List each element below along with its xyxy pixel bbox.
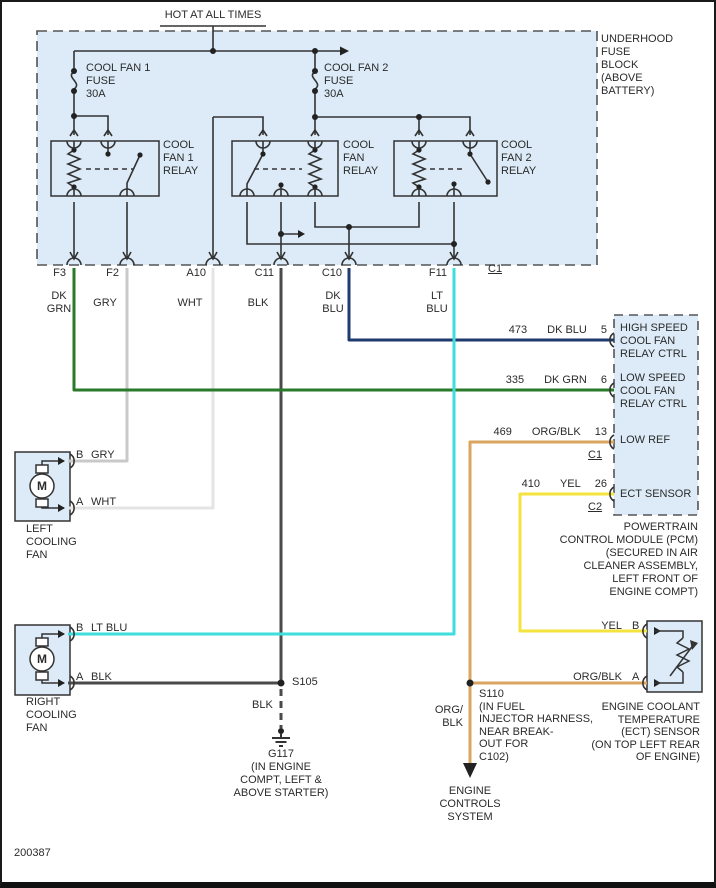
s105-label: S105 [292,676,318,689]
g117-caption: G117 (IN ENGINE COMPT, LEFT & ABOVE STAR… [234,748,329,800]
right-fan-caption: RIGHT COOLING FAN [26,696,77,735]
pcm-conn-c2-label: C2 [588,501,602,514]
fuse2-label: COOL FAN 2 FUSE 30A [324,62,388,101]
wire-color: YEL [560,478,581,490]
engine-controls-system-label: ENGINE CONTROLS SYSTEM [439,785,500,824]
ect-pin-b-color: YEL [562,620,622,633]
wire-color: DK GRN [544,374,587,386]
wire-color-blk: BLK [248,297,269,310]
circuit-number: 335 [506,374,524,386]
circuit-number: 469 [493,426,511,438]
blk-wire-label: BLK [252,699,273,712]
pcm-row2-annotation: 335 DK GRN 6 [442,374,607,386]
diagram-number: 200387 [14,847,51,860]
pcm-row1-annotation: 473 DK BLU 5 [442,324,607,336]
pcm-row4-annotation: 410 YEL 26 [442,478,607,490]
circuit-number: 410 [522,478,540,490]
wire-color: ORG/BLK [532,426,581,438]
pcm-conn-c1-label: C1 [588,449,602,462]
right-fan-motor-letter: M [37,652,47,666]
wire-color: DK BLU [547,324,587,336]
left-fan-pin-b-color: GRY [91,449,115,462]
right-fan-pin-a: A [76,671,83,684]
fuse1-label: COOL FAN 1 FUSE 30A [86,62,150,101]
g117-ground-icon [272,728,290,746]
relay-mid-label: COOL FAN RELAY [343,139,378,178]
left-fan-pin-a: A [76,496,83,509]
right-fan-pin-b-color: LT BLU [91,622,127,635]
pin-f11: F11 [415,267,447,280]
left-fan-pin-b: B [76,449,83,462]
ect-caption: ENGINE COOLANT TEMPERATURE (ECT) SENSOR … [562,701,700,764]
pin-number: 13 [595,426,607,438]
hot-at-all-times-label: HOT AT ALL TIMES [165,9,262,22]
s110-junction [467,680,474,687]
connector-c1-label: C1 [488,263,502,276]
pin-f3: F3 [38,267,66,280]
wire-color-lt-blu: LT BLU [426,290,447,316]
right-fan-pin-a-color: BLK [91,671,112,684]
pcm-low-speed-label: LOW SPEED COOL FAN RELAY CTRL [620,372,696,411]
wire-color-dk-grn: DK GRN [47,290,71,316]
pcm-low-ref-label: LOW REF [620,434,696,447]
relay2-box [394,141,497,196]
pcm-caption: POWERTRAIN CONTROL MODULE (PCM) (SECURED… [522,521,698,599]
right-fan-pin-b: B [76,622,83,635]
pcm-row3-annotation: 469 ORG/BLK 13 [442,426,607,438]
wire-color-dk-blu: DK BLU [322,290,343,316]
org-blk-wire-label: ORG/ BLK [429,704,463,730]
pcm-high-speed-label: HIGH SPEED COOL FAN RELAY CTRL [620,322,696,361]
pin-number: 5 [601,324,607,336]
pin-a10: A10 [174,267,206,280]
pcm-ect-sensor-label: ECT SENSOR [620,488,696,501]
left-fan-pin-a-color: WHT [91,496,116,509]
wire-color-gry: GRY [93,297,117,310]
left-fan-motor-letter: M [37,479,47,493]
wire-color-wht: WHT [177,297,202,310]
underhood-fuse-block-label: UNDERHOOD FUSE BLOCK (ABOVE BATTERY) [601,33,673,98]
relay2-label: COOL FAN 2 RELAY [501,139,536,178]
pin-c11: C11 [242,267,274,280]
left-fan-caption: LEFT COOLING FAN [26,523,77,562]
ect-pin-a-color: ORG/BLK [552,671,622,684]
wiring-diagram-page: HOT AT ALL TIMES UNDERHOOD FUSE BLOCK (A… [0,0,716,888]
ect-pin-b: B [632,620,639,633]
relay1-label: COOL FAN 1 RELAY [163,139,198,178]
engine-controls-arrow [463,763,477,778]
pin-f2: F2 [91,267,119,280]
pin-c10: C10 [310,267,342,280]
pin-number: 26 [595,478,607,490]
ect-pin-a: A [632,671,639,684]
s105-junction [278,680,285,687]
circuit-number: 473 [509,324,527,336]
pin-number: 6 [601,374,607,386]
